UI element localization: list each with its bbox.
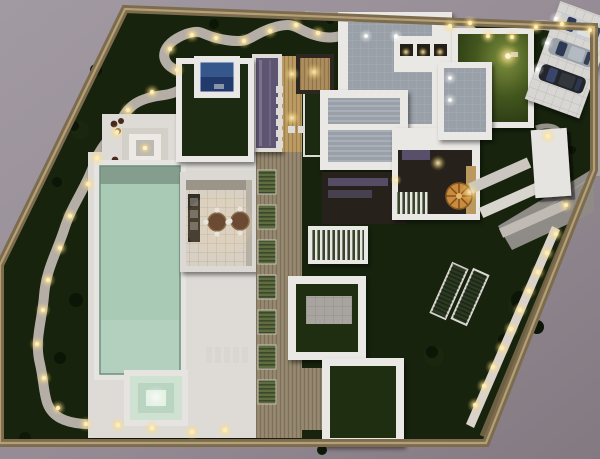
wall-washer-light [359,29,373,43]
wall-washer-light [443,71,457,85]
courtyard-lawn-pad [288,276,366,360]
green-roof-wing [176,56,254,162]
solar-skylight [200,62,234,77]
louver-planters [258,170,276,404]
site-plan-render [0,0,600,459]
spa [124,370,188,426]
dining-terrace [180,172,258,272]
courtyard-lawn-south [322,358,404,446]
wall-washer-light [443,93,457,107]
slat-screen [396,192,428,214]
spiral-stair-zone [392,128,480,220]
lawn-lamp-glow [495,43,521,69]
louvered-pergola [308,226,368,264]
site-plan-svg [0,0,600,459]
swimming-pool [94,160,186,380]
wall-washer-light [389,29,403,43]
spa-glow [144,385,168,409]
